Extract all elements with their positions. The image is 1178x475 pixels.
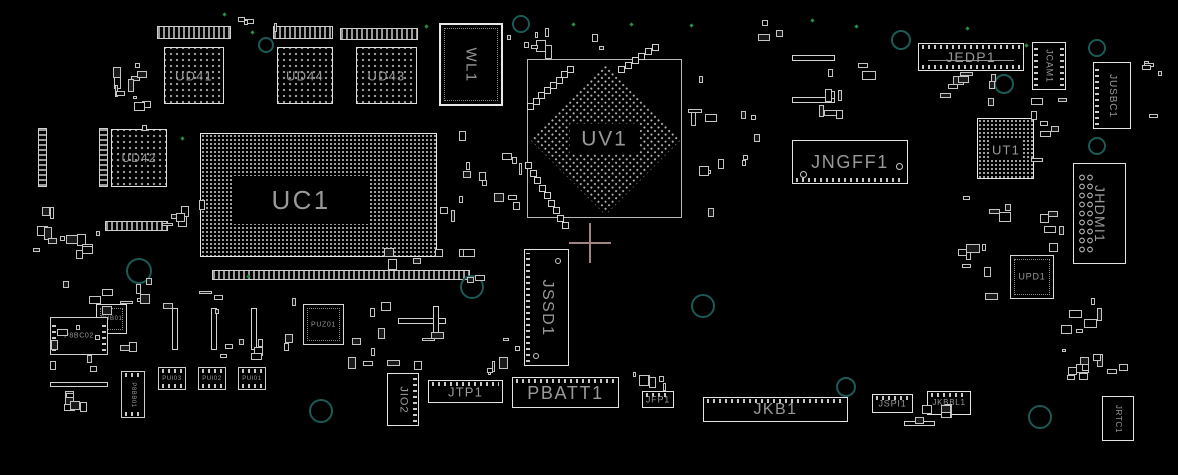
small-component[interactable] <box>985 293 998 300</box>
component-wl1[interactable]: WL1 <box>439 23 503 106</box>
component-label: UV1 <box>581 128 628 149</box>
pin-strip[interactable] <box>99 128 108 187</box>
small-component[interactable] <box>384 248 394 257</box>
small-component[interactable] <box>70 401 80 410</box>
component-pui02[interactable]: PUI02 <box>198 367 226 390</box>
component-pui01[interactable]: PUI01 <box>238 367 266 390</box>
via-dot <box>854 24 858 28</box>
small-component[interactable] <box>435 249 442 257</box>
small-component[interactable] <box>451 210 455 222</box>
mount-hole <box>555 258 561 264</box>
pin-row-top <box>242 369 262 373</box>
small-component[interactable] <box>113 67 121 78</box>
small-component[interactable] <box>741 111 746 119</box>
component-label: PUZ01 <box>311 321 336 328</box>
small-component[interactable] <box>1097 308 1102 321</box>
component-label: PUI03 <box>162 376 181 382</box>
small-component[interactable] <box>1119 364 1128 370</box>
small-component[interactable] <box>1059 226 1063 235</box>
board-hole <box>1088 137 1106 155</box>
small-component[interactable] <box>984 267 991 277</box>
small-component[interactable] <box>135 63 141 68</box>
small-component[interactable] <box>754 134 761 142</box>
small-component[interactable] <box>142 125 147 132</box>
pin-row-bottom <box>202 384 222 388</box>
small-component[interactable] <box>688 109 701 113</box>
small-component[interactable] <box>42 207 50 215</box>
small-component[interactable] <box>134 102 145 111</box>
small-component[interactable] <box>63 281 69 287</box>
pin-strip[interactable] <box>340 28 418 40</box>
pin-row-bottom <box>922 65 1020 69</box>
via-dot <box>810 18 814 22</box>
component-ud44[interactable]: UD44 <box>277 47 333 104</box>
component-label: UD44 <box>286 69 324 82</box>
small-component[interactable] <box>284 343 288 351</box>
small-component[interactable] <box>87 355 92 363</box>
small-component[interactable] <box>962 264 971 267</box>
small-component[interactable] <box>440 207 448 214</box>
small-component[interactable] <box>494 193 503 202</box>
chain-component[interactable] <box>544 192 551 199</box>
board-hole <box>891 30 911 50</box>
small-component[interactable] <box>475 275 485 281</box>
component-jio2[interactable]: JIO2 <box>387 373 419 426</box>
component-label: UC1 <box>271 187 330 213</box>
small-component[interactable] <box>858 63 869 68</box>
component-label: UD43 <box>368 69 406 82</box>
small-component[interactable] <box>1040 121 1048 125</box>
component-jtp1[interactable]: JTP1 <box>428 380 503 403</box>
board-hole <box>836 377 856 397</box>
small-component[interactable] <box>958 249 966 255</box>
small-component[interactable] <box>922 405 933 414</box>
small-component[interactable] <box>708 208 714 218</box>
component-jssd1[interactable]: JSSD1 <box>524 249 569 366</box>
component-label: UPD1 <box>1018 273 1045 282</box>
component-label: JSSD1 <box>539 279 555 336</box>
small-component[interactable] <box>633 372 637 377</box>
component-pbatt1[interactable]: PBATT1 <box>512 377 619 408</box>
component-jngff1[interactable]: JNGFF1 <box>792 140 908 184</box>
board-hole <box>1088 39 1106 57</box>
component-jcam1[interactable]: JCAM1 <box>1032 42 1066 90</box>
small-component[interactable] <box>163 303 172 309</box>
small-component[interactable] <box>371 348 374 356</box>
via-dot <box>250 30 254 34</box>
small-component[interactable] <box>176 213 185 221</box>
small-component[interactable] <box>96 231 100 236</box>
small-bar-component[interactable] <box>251 308 257 350</box>
small-component[interactable] <box>348 357 355 368</box>
component-jhdmi1[interactable]: JHDMI1 <box>1073 163 1126 264</box>
small-component[interactable] <box>691 112 695 126</box>
small-component[interactable] <box>758 34 770 40</box>
small-component[interactable] <box>742 160 746 166</box>
small-component[interactable] <box>1084 319 1097 328</box>
component-label: JFP1 <box>646 395 670 404</box>
small-component[interactable] <box>459 196 464 202</box>
small-component[interactable] <box>95 335 100 340</box>
small-component[interactable] <box>136 284 140 294</box>
component-jkb1[interactable]: JKB1 <box>703 397 848 422</box>
small-component[interactable] <box>999 212 1011 221</box>
small-component[interactable] <box>545 28 549 37</box>
small-component[interactable] <box>199 291 212 295</box>
small-component[interactable] <box>1031 98 1044 105</box>
chain-component[interactable] <box>539 185 546 192</box>
board-hole <box>309 399 333 423</box>
small-component[interactable] <box>512 157 517 164</box>
chain-component[interactable] <box>557 215 564 222</box>
chain-component[interactable] <box>553 207 560 214</box>
small-bar-component[interactable] <box>50 382 108 387</box>
component-label: PBATT1 <box>527 384 603 402</box>
small-component[interactable] <box>705 114 716 122</box>
small-component[interactable] <box>513 202 521 209</box>
small-component[interactable] <box>363 361 373 365</box>
pin-row-top <box>162 369 182 373</box>
via-dot <box>965 26 969 30</box>
component-label: JSPI1 <box>878 399 906 408</box>
small-component[interactable] <box>1076 329 1083 333</box>
component-label: JCAM1 <box>1045 49 1054 83</box>
component-label: UT1 <box>992 143 1020 156</box>
small-component[interactable] <box>499 357 508 370</box>
small-component[interactable] <box>762 20 768 26</box>
pin-row-bottom <box>162 384 182 388</box>
boardview-canvas[interactable]: UD41UD44UD43UD42UC1UT1UV1WL1JEDP1JCAM1JU… <box>0 0 1178 475</box>
small-component[interactable] <box>503 338 509 341</box>
board-hole <box>691 294 715 318</box>
small-component[interactable] <box>140 294 150 304</box>
pin-row-right <box>413 377 417 422</box>
small-component[interactable] <box>225 344 232 349</box>
component-label: UD41 <box>175 69 213 82</box>
small-component[interactable] <box>199 200 205 209</box>
small-component[interactable] <box>102 306 111 315</box>
pin-row-right <box>1060 46 1064 86</box>
small-component[interactable] <box>915 417 924 424</box>
small-component[interactable] <box>215 309 220 314</box>
small-component[interactable] <box>1158 71 1162 76</box>
small-component[interactable] <box>1079 373 1088 380</box>
small-component[interactable] <box>214 295 224 300</box>
pin-row-top <box>202 369 222 373</box>
small-component[interactable] <box>50 361 56 370</box>
chain-component[interactable] <box>567 66 574 73</box>
small-component[interactable] <box>663 383 667 390</box>
small-component[interactable] <box>1058 98 1067 102</box>
component-label: PUI01 <box>242 376 261 382</box>
small-component[interactable] <box>699 76 704 82</box>
small-component[interactable] <box>941 405 951 413</box>
small-component[interactable] <box>146 278 152 285</box>
small-component[interactable] <box>1005 204 1011 212</box>
pin-row-bottom <box>242 384 262 388</box>
pin-row-left <box>1095 66 1099 125</box>
via-dot <box>424 24 428 28</box>
component-uc1[interactable]: UC1 <box>200 133 437 257</box>
component-label: UD42 <box>122 152 157 164</box>
component-jrtc1[interactable]: JRTC1 <box>1102 396 1134 441</box>
chain-component[interactable] <box>534 177 541 184</box>
small-component[interactable] <box>50 207 54 219</box>
pin-strip[interactable] <box>105 221 168 231</box>
small-component[interactable] <box>948 84 958 90</box>
component-label: JHDMI1 <box>1093 184 1107 242</box>
component-ud43[interactable]: UD43 <box>356 47 417 104</box>
pin-row-top <box>931 393 967 397</box>
small-component[interactable] <box>116 91 124 96</box>
small-component[interactable] <box>459 131 466 141</box>
small-component[interactable] <box>988 98 994 106</box>
small-component[interactable] <box>80 402 87 412</box>
small-component[interactable] <box>989 209 1000 213</box>
small-component[interactable] <box>1068 367 1078 375</box>
pin-row-bottom <box>125 412 141 416</box>
small-component[interactable] <box>639 375 649 385</box>
small-component[interactable] <box>388 259 397 270</box>
small-component[interactable] <box>1044 226 1057 234</box>
small-component[interactable] <box>507 35 512 40</box>
component-label: WL1 <box>464 47 479 82</box>
board-hole <box>512 15 530 33</box>
pin-row-left <box>526 253 530 362</box>
component-p8bb01[interactable]: P8BB01 <box>121 371 145 418</box>
small-component[interactable] <box>1142 65 1151 71</box>
component-upd1[interactable]: UPD1 <box>1010 255 1054 299</box>
pin-strip[interactable] <box>273 26 333 39</box>
via-dot <box>629 22 633 26</box>
small-component[interactable] <box>66 393 75 398</box>
component-label: P8BC02 <box>64 333 94 340</box>
component-label: P8BB01 <box>130 382 136 407</box>
chain-component[interactable] <box>525 162 532 169</box>
component-jfp1[interactable]: JFP1 <box>642 391 674 408</box>
component-jedp1[interactable]: JEDP1 <box>918 43 1024 71</box>
small-component[interactable] <box>699 166 709 176</box>
small-component[interactable] <box>285 334 292 344</box>
chain-component[interactable] <box>562 222 569 229</box>
small-component[interactable] <box>137 71 147 78</box>
component-jusbc1[interactable]: JUSBC1 <box>1093 62 1131 129</box>
small-component[interactable] <box>251 353 262 360</box>
small-component[interactable] <box>599 46 604 50</box>
small-component[interactable] <box>120 301 133 304</box>
small-component[interactable] <box>718 159 724 169</box>
small-component[interactable] <box>1061 325 1073 334</box>
small-component[interactable] <box>1082 364 1089 372</box>
small-component[interactable] <box>381 302 391 311</box>
component-ut1[interactable]: UT1 <box>977 118 1034 179</box>
small-component[interactable] <box>82 244 93 247</box>
small-component[interactable] <box>515 346 520 351</box>
small-component[interactable] <box>370 308 375 317</box>
small-component[interactable] <box>838 90 842 101</box>
component-jspi1[interactable]: JSPI1 <box>872 394 913 413</box>
small-component[interactable] <box>1091 298 1095 305</box>
label-backing: UV1 <box>569 123 640 154</box>
component-label: JNGFF1 <box>811 153 889 171</box>
small-component[interactable] <box>274 23 278 32</box>
small-component[interactable] <box>1149 114 1158 118</box>
small-component[interactable] <box>862 71 876 80</box>
bga-core: UT1 <box>989 140 1023 159</box>
small-component[interactable] <box>508 195 517 200</box>
small-component[interactable] <box>76 325 80 330</box>
small-component[interactable] <box>482 180 487 186</box>
chain-component[interactable] <box>548 200 555 207</box>
small-component[interactable] <box>1093 354 1101 361</box>
pin-row-left <box>1034 46 1038 86</box>
component-label: JTP1 <box>448 385 483 398</box>
small-component[interactable] <box>463 171 472 177</box>
mount-hole <box>896 163 903 170</box>
small-component[interactable] <box>467 277 474 283</box>
small-component[interactable] <box>238 17 245 22</box>
small-component[interactable] <box>989 81 995 89</box>
chain-component[interactable] <box>530 170 537 177</box>
small-component[interactable] <box>751 115 755 120</box>
small-component[interactable] <box>531 45 538 50</box>
via-dot <box>1024 43 1028 47</box>
small-component[interactable] <box>90 366 97 371</box>
small-component[interactable] <box>57 329 68 336</box>
component-label: PUI02 <box>202 376 221 382</box>
pin-strip[interactable] <box>212 270 470 280</box>
small-component[interactable] <box>89 296 100 304</box>
board-hole <box>1028 405 1052 429</box>
pin-strip[interactable] <box>157 26 231 39</box>
small-component[interactable] <box>1051 126 1059 132</box>
board-hole <box>994 74 1014 94</box>
small-component[interactable] <box>1107 369 1117 373</box>
chain-component[interactable] <box>652 44 659 51</box>
small-component[interactable] <box>519 163 523 174</box>
small-component[interactable] <box>659 376 664 382</box>
board-hole <box>258 37 274 53</box>
small-component[interactable] <box>102 289 114 296</box>
mount-hole <box>533 353 539 359</box>
small-component[interactable] <box>1069 310 1082 319</box>
small-component[interactable] <box>836 110 843 119</box>
small-component[interactable] <box>413 258 420 264</box>
small-component[interactable] <box>378 328 385 338</box>
component-puz01[interactable]: PUZ01 <box>303 304 344 345</box>
small-component[interactable] <box>831 91 835 99</box>
component-label: JRTC1 <box>1114 404 1122 432</box>
small-component[interactable] <box>220 354 227 358</box>
small-component[interactable] <box>592 34 598 43</box>
small-component[interactable] <box>776 30 783 37</box>
small-bar-component[interactable] <box>792 55 835 61</box>
small-component[interactable] <box>162 223 174 226</box>
small-component[interactable] <box>258 339 263 347</box>
small-component[interactable] <box>1031 158 1043 163</box>
small-component[interactable] <box>463 249 475 257</box>
small-component[interactable] <box>51 340 58 349</box>
small-component[interactable] <box>292 298 296 307</box>
small-component[interactable] <box>133 96 137 99</box>
small-component[interactable] <box>982 244 986 251</box>
component-label: JEDP1 <box>946 50 996 64</box>
small-component[interactable] <box>1062 349 1066 352</box>
small-component[interactable] <box>352 338 361 345</box>
component-ud41[interactable]: UD41 <box>164 47 224 104</box>
pin-row-right <box>102 321 106 351</box>
component-label: JIO2 <box>398 386 409 413</box>
small-component[interactable] <box>1049 243 1059 252</box>
mount-hole <box>800 171 807 178</box>
pin-row-top <box>125 373 141 377</box>
small-component[interactable] <box>76 250 84 259</box>
small-component[interactable] <box>1048 211 1059 217</box>
small-component[interactable] <box>819 105 824 118</box>
small-bar-component[interactable] <box>172 308 178 350</box>
component-label: JUSBC1 <box>1107 74 1117 118</box>
component-ud42[interactable]: UD42 <box>111 129 167 187</box>
pin-strip[interactable] <box>38 128 47 187</box>
small-component[interactable] <box>33 248 40 252</box>
small-component[interactable] <box>431 332 443 340</box>
small-component[interactable] <box>828 69 832 77</box>
small-component[interactable] <box>524 42 529 48</box>
via-dot <box>689 23 693 27</box>
small-component[interactable] <box>414 361 422 369</box>
small-bar-component[interactable] <box>211 308 217 350</box>
small-component[interactable] <box>129 342 137 352</box>
small-component[interactable] <box>128 79 133 92</box>
small-component[interactable] <box>60 236 65 241</box>
component-label: JKB1 <box>753 402 797 418</box>
small-component[interactable] <box>48 238 58 244</box>
small-component[interactable] <box>1040 131 1051 137</box>
small-component[interactable] <box>239 339 244 345</box>
small-component[interactable] <box>545 45 553 59</box>
bga-core: UC1 <box>234 176 368 224</box>
small-component[interactable] <box>966 244 979 253</box>
small-component[interactable] <box>487 368 493 373</box>
pin-row-bottom <box>796 178 904 182</box>
small-component[interactable] <box>387 360 400 366</box>
via-dot <box>571 22 575 26</box>
via-dot <box>180 136 184 140</box>
small-component[interactable] <box>940 93 951 98</box>
small-component[interactable] <box>958 76 968 84</box>
small-component[interactable] <box>1031 111 1037 120</box>
small-component[interactable] <box>535 32 538 38</box>
crosshair-vertical <box>589 223 591 263</box>
small-component[interactable] <box>466 162 470 170</box>
via-dot <box>222 12 226 16</box>
component-pui03[interactable]: PUI03 <box>158 367 186 390</box>
small-component[interactable] <box>963 196 971 200</box>
small-component[interactable] <box>1067 375 1074 380</box>
